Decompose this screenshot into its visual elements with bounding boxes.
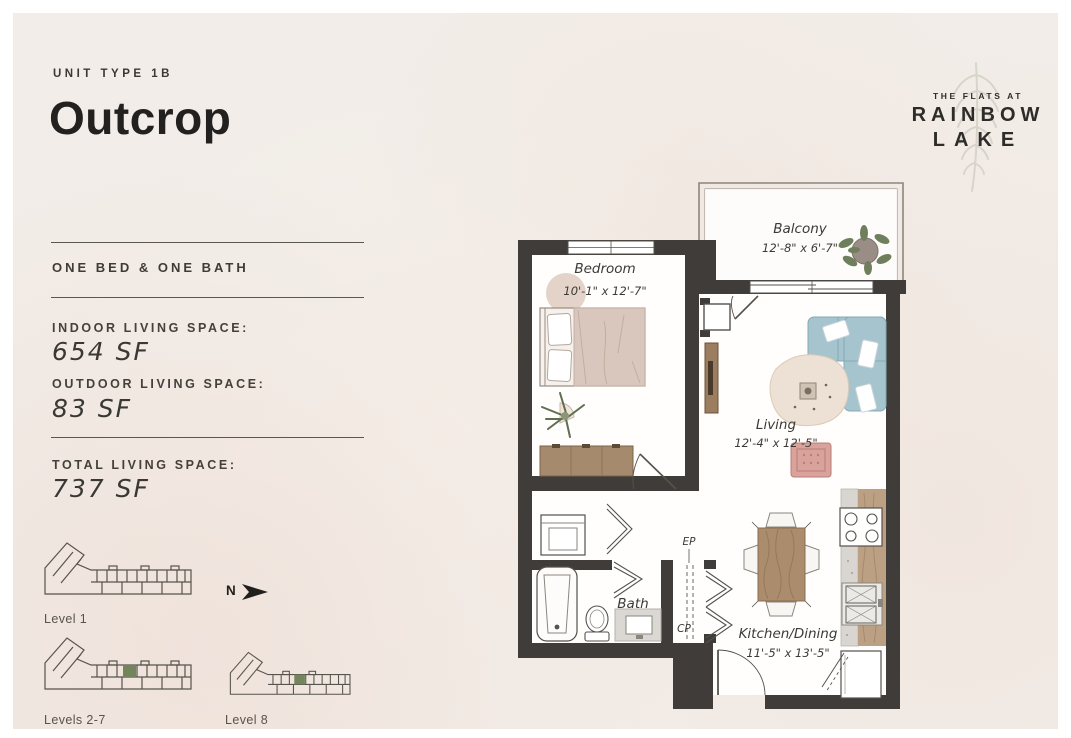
living-rug bbox=[770, 355, 849, 426]
outdoor-space-value: 83 SF bbox=[52, 394, 132, 423]
kitchen-sink bbox=[842, 583, 883, 625]
north-arrow-icon bbox=[242, 581, 268, 603]
ep-label: EP bbox=[683, 536, 697, 548]
level-1-diagram bbox=[39, 540, 199, 612]
balcony-slider-door bbox=[750, 281, 873, 293]
page-title: Outcrop bbox=[49, 91, 231, 145]
logo-line2: LAKE bbox=[893, 129, 1063, 152]
bath-vanity bbox=[615, 609, 661, 641]
bed-bath-config: ONE BED & ONE BATH bbox=[52, 260, 249, 275]
bedroom-dims: 10'-1" x 12'-7" bbox=[563, 284, 646, 298]
floorplan: Bedroom 10'-1" x 12'-7" Balcony 12'-8" x… bbox=[508, 171, 908, 731]
logo-line1: RAINBOW bbox=[893, 104, 1063, 127]
page-background: UNIT TYPE 1B Outcrop THE FLATS AT RAINBO… bbox=[13, 13, 1058, 729]
media-console bbox=[705, 343, 718, 413]
unit-type-label: UNIT TYPE 1B bbox=[53, 68, 173, 80]
bath-label: Bath bbox=[617, 596, 648, 612]
outdoor-space-label: OUTDOOR LIVING SPACE: bbox=[52, 377, 265, 391]
total-space-value: 737 SF bbox=[52, 474, 150, 503]
level-8-label: Level 8 bbox=[225, 713, 268, 727]
divider-line bbox=[51, 242, 364, 243]
logo-tagline: THE FLATS AT bbox=[893, 91, 1063, 101]
divider-line bbox=[51, 437, 364, 438]
brand-logo: THE FLATS AT RAINBOW LAKE bbox=[893, 91, 1063, 152]
total-space-label: TOTAL LIVING SPACE: bbox=[52, 458, 237, 472]
kitchen-label: Kitchen/Dining bbox=[739, 626, 838, 642]
balcony-label: Balcony bbox=[773, 221, 828, 237]
cp-label: CP bbox=[677, 623, 691, 635]
kitchen-dims: 11'-5" x 13'-5" bbox=[746, 646, 829, 660]
indoor-space-label: INDOOR LIVING SPACE: bbox=[52, 321, 249, 335]
indoor-space-value: 654 SF bbox=[52, 337, 150, 366]
level-1-label: Level 1 bbox=[44, 612, 87, 626]
bathtub bbox=[537, 567, 577, 641]
level-8-diagram bbox=[225, 650, 357, 709]
bedroom-label: Bedroom bbox=[574, 261, 635, 277]
dresser bbox=[540, 444, 633, 476]
highlighted-unit bbox=[294, 675, 305, 685]
stove bbox=[840, 508, 882, 546]
north-label: N bbox=[226, 583, 237, 598]
living-label: Living bbox=[756, 417, 797, 433]
divider-line bbox=[51, 297, 364, 298]
levels-2-7-label: Levels 2-7 bbox=[44, 713, 106, 727]
toilet bbox=[585, 606, 609, 641]
highlighted-unit bbox=[123, 665, 136, 677]
bedroom-window bbox=[568, 241, 654, 254]
levels-2-7-diagram bbox=[39, 635, 199, 707]
washer-dryer bbox=[541, 515, 585, 555]
balcony-dims: 12'-8" x 6'-7" bbox=[762, 241, 838, 255]
living-dims: 12'-4" x 12'-5" bbox=[734, 436, 817, 450]
bed bbox=[540, 308, 645, 386]
